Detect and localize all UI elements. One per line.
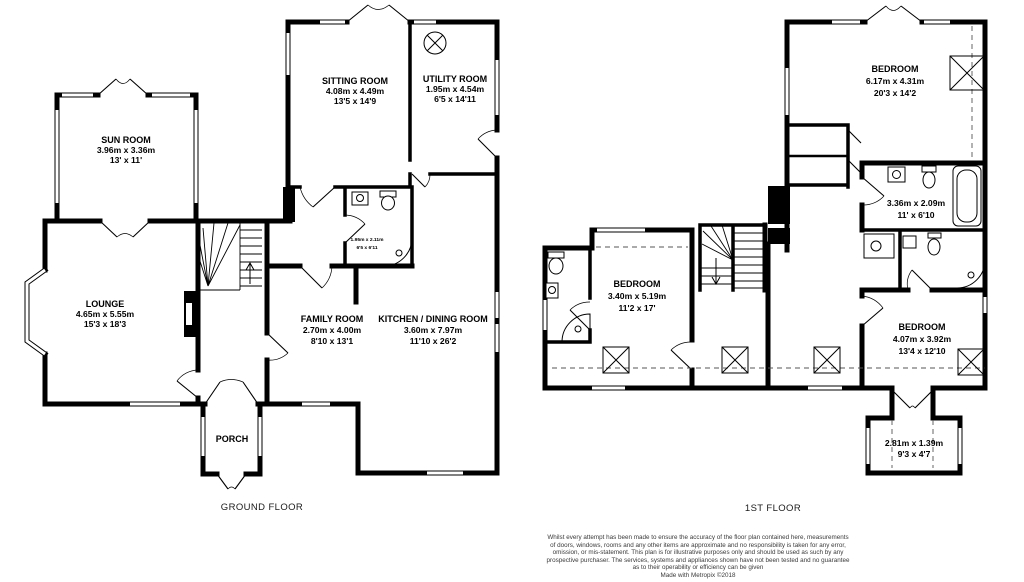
wc-shower-icon — [957, 260, 985, 288]
extractor-fan-blades — [427, 35, 443, 51]
roof-window-icon — [722, 347, 748, 373]
bathroom-toilet-cistern — [922, 166, 936, 172]
utility-back-door — [478, 139, 497, 158]
sink-icon — [352, 192, 368, 205]
wc-toilet-icon — [928, 239, 940, 255]
room-imperial: 11'2 x 17' — [618, 303, 655, 313]
room-label-sun-room: SUN ROOM 3.96m x 3.36m 13' x 11' — [97, 135, 156, 165]
room-label-kitchen-dining-room: KITCHEN / DINING ROOM 3.60m x 7.97m 11'1… — [378, 314, 488, 346]
sunroom-lounge-doors-arc — [117, 234, 133, 238]
hall-chimney-breast — [283, 187, 295, 222]
room-label-bedroom-main: BEDROOM 6.17m x 4.31m 20'3 x 14'2 — [866, 64, 925, 98]
ensuite-sink-icon — [546, 283, 558, 298]
room-metric: 3.96m x 3.36m — [97, 145, 156, 155]
first-outer-walls — [545, 22, 985, 473]
utility-kitchen-door — [412, 174, 425, 187]
ground-inner-walls — [288, 22, 497, 266]
lounge-door — [177, 381, 198, 398]
room-label-family-room: FAMILY ROOM 2.70m x 4.00m 8'10 x 13'1 — [301, 314, 364, 346]
family-hall-door-arc — [322, 266, 332, 288]
front-door-leaves — [205, 382, 258, 404]
bedroom-right-door-arc — [862, 296, 883, 308]
wc-basin-icon — [903, 236, 916, 248]
lounge-door-arc — [177, 370, 198, 381]
wc-shower-head — [968, 272, 974, 278]
stair-direction-arrow — [246, 263, 254, 284]
first-floor-plan: BEDROOM 6.17m x 4.31m 20'3 x 14'2 3.36m … — [545, 6, 985, 514]
bedroom-left-door — [671, 350, 692, 370]
porch-doors-arc — [228, 487, 235, 489]
inner-hall-door — [313, 187, 335, 207]
room-metric: 3.60m x 7.97m — [404, 325, 463, 335]
lounge-fireplace-recess — [186, 303, 192, 325]
ground-floor-title: GROUND FLOOR — [221, 502, 303, 513]
shower-icon — [384, 238, 412, 266]
toilet-icon — [382, 196, 395, 210]
room-imperial: 8'10 x 13'1 — [311, 336, 354, 346]
bedroom-right-door — [862, 308, 883, 326]
bathroom-door-arc — [862, 196, 884, 205]
ground-floor-labels: SUN ROOM 3.96m x 3.36m 13' x 11' LOUNGE … — [76, 74, 488, 513]
first-floor-walls — [545, 22, 985, 473]
room-label-utility-room: UTILITY ROOM 1.95m x 4.54m 6'5 x 14'11 — [423, 74, 487, 104]
sittingroom-french-doors — [347, 5, 410, 22]
room-metric: 4.07m x 3.92m — [893, 334, 952, 344]
room-imperial: 13' x 11' — [110, 155, 142, 165]
room-label-bathroom: 3.36m x 2.09m 11' x 6'10 — [887, 198, 946, 220]
room-imperial: 13'5 x 14'9 — [334, 96, 377, 106]
room-name: FAMILY ROOM — [301, 314, 364, 324]
sunroom-french-doors — [98, 79, 148, 95]
room-metric: 6.17m x 4.31m — [866, 76, 925, 86]
disclaimer-line: Whilst every attempt has been made to en… — [528, 534, 868, 542]
room-metric: 1.95m x 4.54m — [426, 84, 485, 94]
floorplan-drawing: SUN ROOM 3.96m x 3.36m 13' x 11' LOUNGE … — [0, 0, 1024, 582]
ensuite-toilet-cistern — [548, 252, 564, 258]
room-name: UTILITY ROOM — [423, 74, 487, 84]
stair-direction-arrow — [712, 258, 720, 284]
room-name: LOUNGE — [86, 299, 125, 309]
room-name: BEDROOM — [899, 322, 946, 332]
disclaimer-line: of doors, windows, rooms and any other i… — [528, 542, 868, 550]
roof-window-icon — [958, 349, 984, 375]
room-name: SUN ROOM — [101, 135, 151, 145]
ensuite-left-door-arc — [570, 302, 590, 310]
room-metric: 4.08m x 4.49m — [326, 86, 385, 96]
room-label-bedroom-right: BEDROOM 4.07m x 3.92m 13'4 x 12'10 — [893, 322, 952, 356]
room-imperial: 11'10 x 26'2 — [410, 336, 457, 346]
disclaimer-line: omission, or mis-statement. This plan is… — [528, 549, 868, 557]
stair-winders — [702, 225, 733, 260]
front-door-arc — [220, 380, 243, 383]
bathroom-door — [862, 177, 884, 196]
room-imperial: 6'5 x 6'11 — [356, 245, 377, 251]
roof-window-icon — [814, 347, 840, 373]
vanity-unit-icon — [864, 234, 894, 258]
roof-window-icon — [603, 347, 629, 373]
cupboard-doors — [848, 130, 861, 173]
room-label-sitting-room: SITTING ROOM 4.08m x 4.49m 13'5 x 14'9 — [322, 76, 388, 106]
disclaimer-line: as to their operability or efficiency ca… — [528, 564, 868, 572]
box-room-doors-arc — [910, 406, 915, 408]
room-name: BEDROOM — [614, 279, 661, 289]
wc-toilet-cistern — [928, 233, 941, 238]
ground-floor-fixtures — [352, 32, 446, 266]
room-imperial: 13'4 x 12'10 — [898, 346, 945, 356]
ensuite-shower-icon — [562, 314, 590, 342]
first-floor-title: 1ST FLOOR — [745, 503, 801, 514]
room-label-lounge: LOUNGE 4.65m x 5.55m 15'3 x 18'3 — [76, 299, 135, 329]
room-metric: 3.36m x 2.09m — [887, 198, 946, 208]
bedroom-left-door-arc — [671, 342, 692, 350]
room-imperial: 9'3 x 4'7 — [898, 449, 931, 459]
ground-floor-plan: SUN ROOM 3.96m x 3.36m 13' x 11' LOUNGE … — [27, 5, 497, 513]
family-room-door — [267, 333, 288, 353]
family-hall-door — [300, 266, 322, 288]
ground-floor-stairs — [199, 222, 262, 290]
sunroom-lounge-doors — [100, 221, 150, 237]
family-room-door-arc — [267, 353, 288, 360]
first-chimney-breast-2 — [768, 228, 790, 244]
bathroom-sink-icon — [888, 167, 905, 182]
room-metric: 1.95m x 2.11m — [351, 237, 385, 243]
utility-back-door-arc — [478, 130, 497, 139]
room-imperial: 20'3 x 14'2 — [874, 88, 917, 98]
room-imperial: 6'5 x 14'11 — [434, 94, 476, 104]
sittingroom-french-doors-arc — [368, 5, 389, 10]
lounge-bay-window-glass — [27, 270, 45, 354]
room-name: SITTING ROOM — [322, 76, 388, 86]
shower-head — [396, 250, 402, 256]
bedroom-main-french-doors — [865, 6, 922, 22]
ensuite-wc-door-arc — [907, 270, 912, 290]
bathroom-toilet-icon — [923, 172, 935, 188]
ensuite-shower-head — [575, 326, 581, 332]
room-label-porch: PORCH — [216, 434, 249, 444]
room-label-bedroom-left: BEDROOM 3.40m x 5.19m 11'2 x 17' — [608, 279, 667, 313]
first-chimney-breast — [768, 186, 790, 224]
bedroom-main-french-doors-arc — [886, 6, 901, 11]
box-room-doors — [892, 390, 933, 408]
room-name: BEDROOM — [872, 64, 919, 74]
inner-hall-door-arc — [300, 187, 313, 207]
room-imperial: 11' x 6'10 — [897, 210, 934, 220]
disclaimer: Whilst every attempt has been made to en… — [528, 534, 868, 580]
floorplan-page: SUN ROOM 3.96m x 3.36m 13' x 11' LOUNGE … — [0, 0, 1024, 582]
sunroom-french-doors-arc — [116, 79, 130, 84]
utility-kitchen-door-arc — [425, 174, 430, 187]
credit-line: Made with Metropix ©2018 — [528, 572, 868, 580]
stair-winders — [199, 223, 240, 286]
ensuite-wc-door — [912, 270, 932, 290]
room-metric: 2.70m x 4.00m — [303, 325, 362, 335]
disclaimer-line: prospective purchaser. The services, sys… — [528, 557, 868, 565]
room-imperial: 15'3 x 18'3 — [84, 319, 127, 329]
room-metric: 4.65m x 5.55m — [76, 309, 135, 319]
room-name: PORCH — [216, 434, 249, 444]
room-label-shower-room: 1.95m x 2.11m 6'5 x 6'11 — [351, 237, 385, 251]
stair-treads — [200, 222, 262, 290]
shower-room-door-arc — [345, 215, 365, 224]
room-metric: 2.81m x 1.39m — [885, 438, 944, 448]
room-label-box-room: 2.81m x 1.39m 9'3 x 4'7 — [885, 438, 944, 459]
room-name: KITCHEN / DINING ROOM — [378, 314, 488, 324]
roof-window-icon — [950, 56, 984, 90]
ensuite-toilet-icon — [549, 258, 563, 274]
room-metric: 3.40m x 5.19m — [608, 291, 667, 301]
